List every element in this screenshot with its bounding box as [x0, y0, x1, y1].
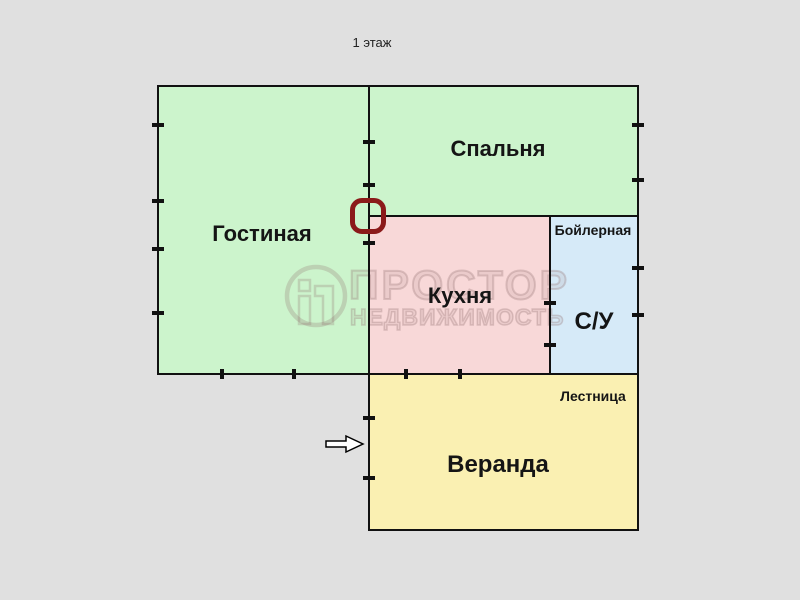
- wall-bedroom-bottom: [368, 215, 639, 217]
- wall-tick: [152, 311, 164, 315]
- wall-tick: [632, 313, 644, 317]
- wall-tick: [363, 241, 375, 245]
- label-stairs: Лестница: [560, 389, 626, 403]
- wall-tick: [632, 178, 644, 182]
- wall-tick: [220, 369, 224, 379]
- wall-tick: [152, 247, 164, 251]
- wall-tick: [632, 266, 644, 270]
- wall-right: [637, 85, 639, 531]
- wall-tick: [404, 369, 408, 379]
- wall-tick: [363, 416, 375, 420]
- wall-tick: [363, 140, 375, 144]
- wall-main-bottom: [157, 373, 639, 375]
- entrance-arrow-icon: [324, 433, 366, 455]
- watermark-subtitle-text: НЕДВИЖИМОСТЬ: [350, 305, 564, 329]
- wall-tick: [544, 343, 556, 347]
- wall-tick: [292, 369, 296, 379]
- watermark-logo: [282, 262, 350, 330]
- wall-tick: [363, 476, 375, 480]
- label-bedroom: Спальня: [450, 138, 545, 160]
- wall-tick: [363, 183, 375, 187]
- wall-tick: [458, 369, 462, 379]
- wall-top: [157, 85, 639, 87]
- wall-tick: [544, 301, 556, 305]
- label-living: Гостиная: [212, 223, 311, 245]
- door-opening-marker: [350, 198, 386, 234]
- wall-tick: [632, 123, 644, 127]
- wall-left: [157, 85, 159, 375]
- label-bathroom: С/У: [575, 310, 614, 334]
- label-kitchen: Кухня: [428, 285, 492, 307]
- floor-title: 1 этаж: [312, 35, 432, 50]
- wall-kitchen-bathroom: [549, 215, 551, 373]
- wall-center-vertical: [368, 85, 370, 531]
- wall-veranda-bottom: [368, 529, 639, 531]
- label-veranda: Веранда: [447, 453, 549, 477]
- label-boiler: Бойлерная: [555, 223, 632, 237]
- wall-tick: [152, 199, 164, 203]
- wall-tick: [152, 123, 164, 127]
